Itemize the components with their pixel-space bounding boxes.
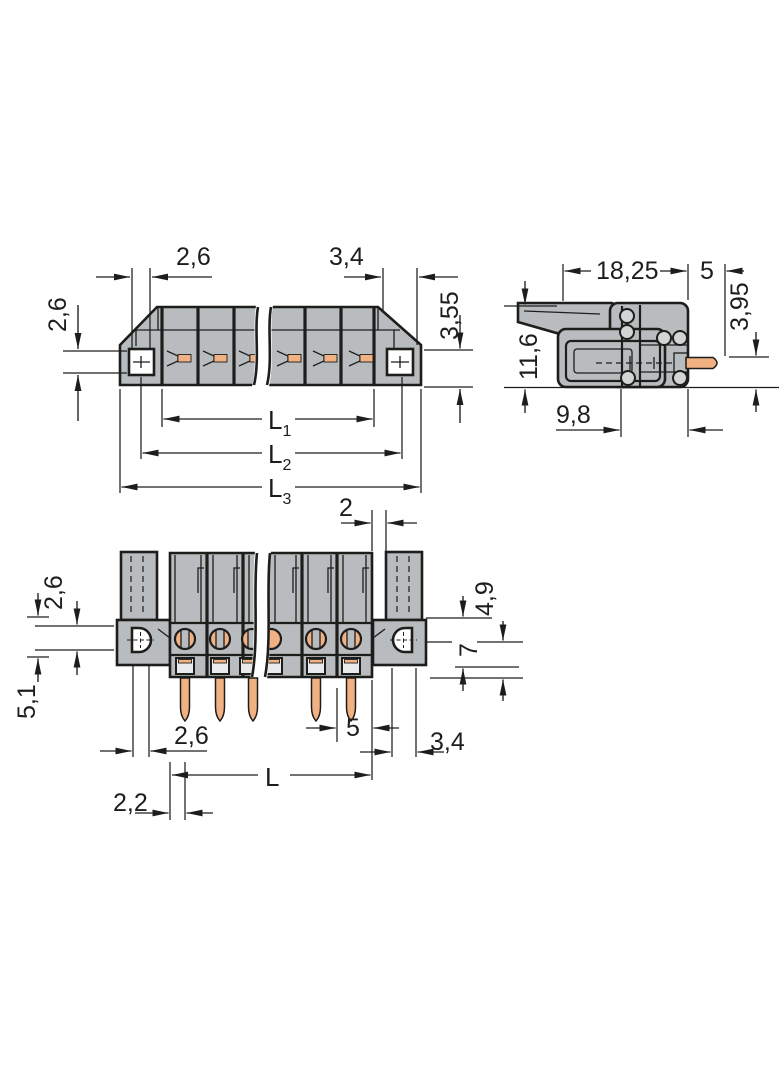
dim-label: 3,4	[430, 728, 465, 756]
dim-label: 5	[346, 714, 360, 742]
dim-label: 9,8	[556, 401, 591, 429]
dim-label: 11,6	[515, 333, 543, 380]
flange-right-upper	[386, 552, 422, 620]
dim-label-L1: L1	[268, 405, 291, 440]
bottom-view	[117, 551, 426, 721]
dim-label: 5,1	[13, 684, 41, 719]
dim-label: 2,6	[174, 722, 209, 750]
dim-label: 2,6	[176, 243, 211, 271]
front-view	[120, 306, 421, 387]
dim-label: 18,25	[596, 257, 659, 285]
mounting-hole-right-bottom	[393, 628, 412, 652]
dim-label: 2	[339, 494, 353, 522]
flange-left-upper	[121, 552, 157, 620]
dim-label: 3,95	[726, 282, 754, 331]
dim-label: 2,6	[44, 297, 72, 332]
dim-label: 5	[700, 257, 714, 285]
side-view	[518, 303, 717, 387]
dim-label: 3,55	[436, 291, 464, 340]
dim-label-L3: L3	[268, 473, 291, 508]
solder-pin-side	[686, 358, 717, 369]
mounting-hole-right	[387, 349, 413, 375]
dim-label: 4,9	[471, 581, 499, 616]
connector-dimensional-drawing: 2,6 3,4 2,6 3,55 L1 L2 L3	[0, 0, 784, 1066]
dim-label: 7	[455, 643, 483, 657]
dim-label-L2: L2	[268, 439, 291, 474]
mounting-hole-left	[129, 349, 154, 375]
dim-label: 2,2	[113, 789, 148, 817]
dim-label: 2,6	[40, 575, 68, 610]
dim-label: 3,4	[329, 243, 364, 271]
solder-pins	[181, 678, 356, 721]
technical-drawing-page: 2,6 3,4 2,6 3,55 L1 L2 L3	[0, 0, 784, 1066]
dim-label-L: L	[265, 762, 279, 792]
